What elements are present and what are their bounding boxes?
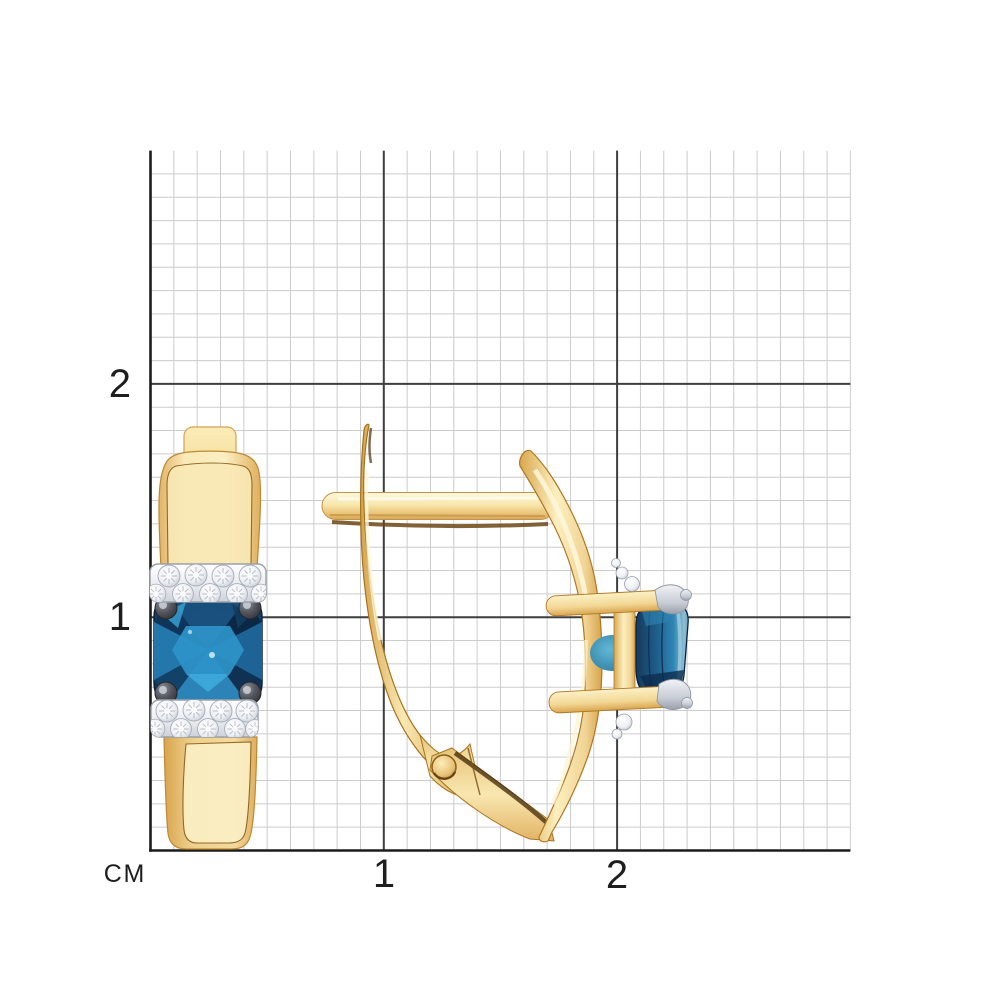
hook-tip-shadow bbox=[370, 428, 372, 463]
side-view-earring bbox=[322, 424, 693, 842]
y-tick-label-2: 2 bbox=[109, 362, 131, 406]
upper-inner-panel bbox=[167, 463, 252, 566]
product-photo: 2 1 1 2 СМ bbox=[0, 0, 1000, 1000]
lower-inner-panel bbox=[183, 742, 251, 843]
x-tick-label-1: 1 bbox=[373, 852, 395, 896]
x-tick-label-2: 2 bbox=[606, 853, 628, 897]
diamond-band-bottom bbox=[145, 699, 264, 739]
front-view-earring bbox=[145, 427, 271, 849]
y-tick-label-1: 1 bbox=[109, 595, 131, 639]
pin-highlight bbox=[338, 498, 540, 499]
product-photo-svg: 2 1 1 2 СМ bbox=[0, 0, 1000, 1000]
unit-label: СМ bbox=[104, 860, 147, 888]
diamond-band-top bbox=[146, 564, 271, 604]
